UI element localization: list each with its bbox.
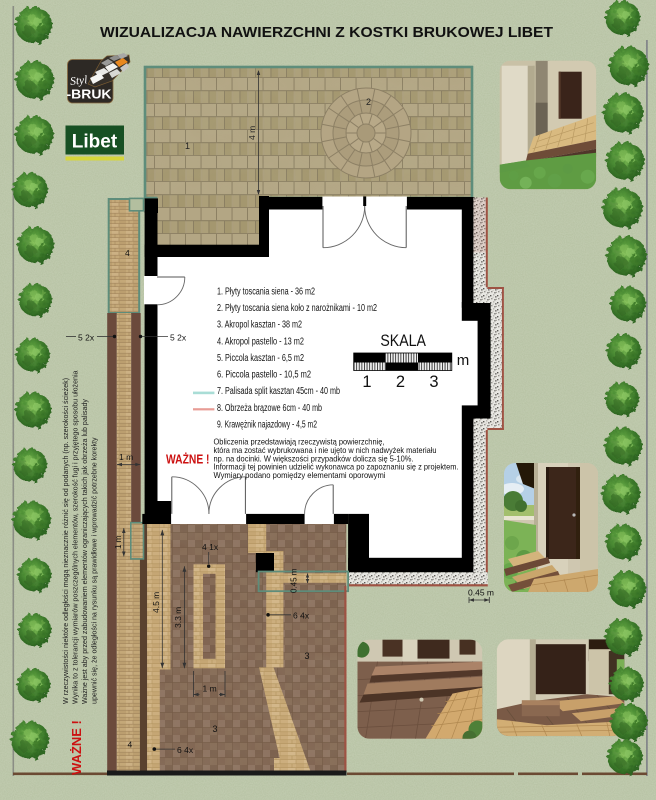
svg-text:6. Piccola pastello - 10,5 m2: 6. Piccola pastello - 10,5 m2	[217, 370, 311, 381]
svg-text:Wynika to z tolerancji wymiaró: Wynika to z tolerancji wymiarów poszczeg…	[72, 370, 80, 704]
svg-text:m: m	[457, 352, 470, 369]
svg-text:3: 3	[429, 373, 438, 391]
svg-text:1. Płyty toscania siena - 36 m: 1. Płyty toscania siena - 36 m2	[217, 287, 315, 298]
svg-text:0.45 m: 0.45 m	[290, 568, 299, 593]
svg-text:Libet: Libet	[72, 132, 118, 153]
svg-text:1: 1	[362, 373, 371, 391]
svg-text:4 1x: 4 1x	[202, 542, 219, 552]
svg-text:WIZUALIZACJA NAWIERZCHNI Z KOS: WIZUALIZACJA NAWIERZCHNI Z KOSTKI BRUKOW…	[100, 24, 553, 41]
svg-text:Wymiary podano pomiędzy elemen: Wymiary podano pomiędzy elementami oporo…	[214, 470, 386, 480]
svg-text:W rzeczywistości niektóre odle: W rzeczywistości niektóre odległości mog…	[62, 378, 70, 704]
svg-text:8. Obrzeża brązowe 6cm - 40 mb: 8. Obrzeża brązowe 6cm - 40 mb	[217, 403, 322, 414]
svg-text:5 2x: 5 2x	[170, 333, 187, 343]
svg-text:3.3 m: 3.3 m	[173, 607, 183, 628]
svg-text:5 2x: 5 2x	[78, 333, 95, 343]
svg-text:6 4x: 6 4x	[177, 745, 194, 755]
svg-text:3: 3	[305, 651, 310, 661]
svg-text:1: 1	[185, 141, 190, 151]
svg-text:WAŻNE !: WAŻNE !	[69, 720, 84, 775]
svg-text:WAŻNE !: WAŻNE !	[166, 452, 210, 467]
svg-text:3. Akropol kasztan - 38 m2: 3. Akropol kasztan - 38 m2	[217, 320, 302, 331]
svg-text:9. Krawężnik najazdowy - 4,5 m: 9. Krawężnik najazdowy - 4,5 m2	[217, 419, 317, 430]
svg-text:4.5 m: 4.5 m	[151, 592, 161, 613]
svg-text:6 4x: 6 4x	[293, 611, 310, 621]
svg-text:Ważne jest aby przed zabudowan: Ważne jest aby przed zabudowaniem elemen…	[81, 399, 89, 704]
svg-text:0.45 m: 0.45 m	[468, 588, 494, 598]
svg-text:3: 3	[213, 724, 218, 734]
svg-text:4: 4	[128, 740, 133, 750]
svg-text:2: 2	[366, 97, 371, 107]
svg-text:upewnić się, że odległości na: upewnić się, że odległości na rysunku są…	[91, 437, 99, 704]
svg-text:1 m: 1 m	[119, 452, 133, 462]
svg-text:5. Piccola kasztan - 6,5 m2: 5. Piccola kasztan - 6,5 m2	[217, 353, 304, 364]
svg-text:SKALA: SKALA	[380, 331, 426, 350]
svg-text:2: 2	[396, 373, 405, 391]
svg-text:4: 4	[125, 248, 130, 258]
svg-text:1 m: 1 m	[203, 684, 217, 694]
svg-text:2. Płyty toscania siena koło z: 2. Płyty toscania siena koło z narożnika…	[217, 303, 377, 314]
svg-text:1 m: 1 m	[114, 535, 123, 549]
svg-text:-BRUK: -BRUK	[67, 87, 113, 102]
svg-text:4 m: 4 m	[247, 126, 257, 140]
svg-text:4. Akropol pastello - 13 m2: 4. Akropol pastello - 13 m2	[217, 336, 304, 347]
svg-text:7. Palisada split kasztan 45cm: 7. Palisada split kasztan 45cm - 40 mb	[217, 386, 340, 397]
